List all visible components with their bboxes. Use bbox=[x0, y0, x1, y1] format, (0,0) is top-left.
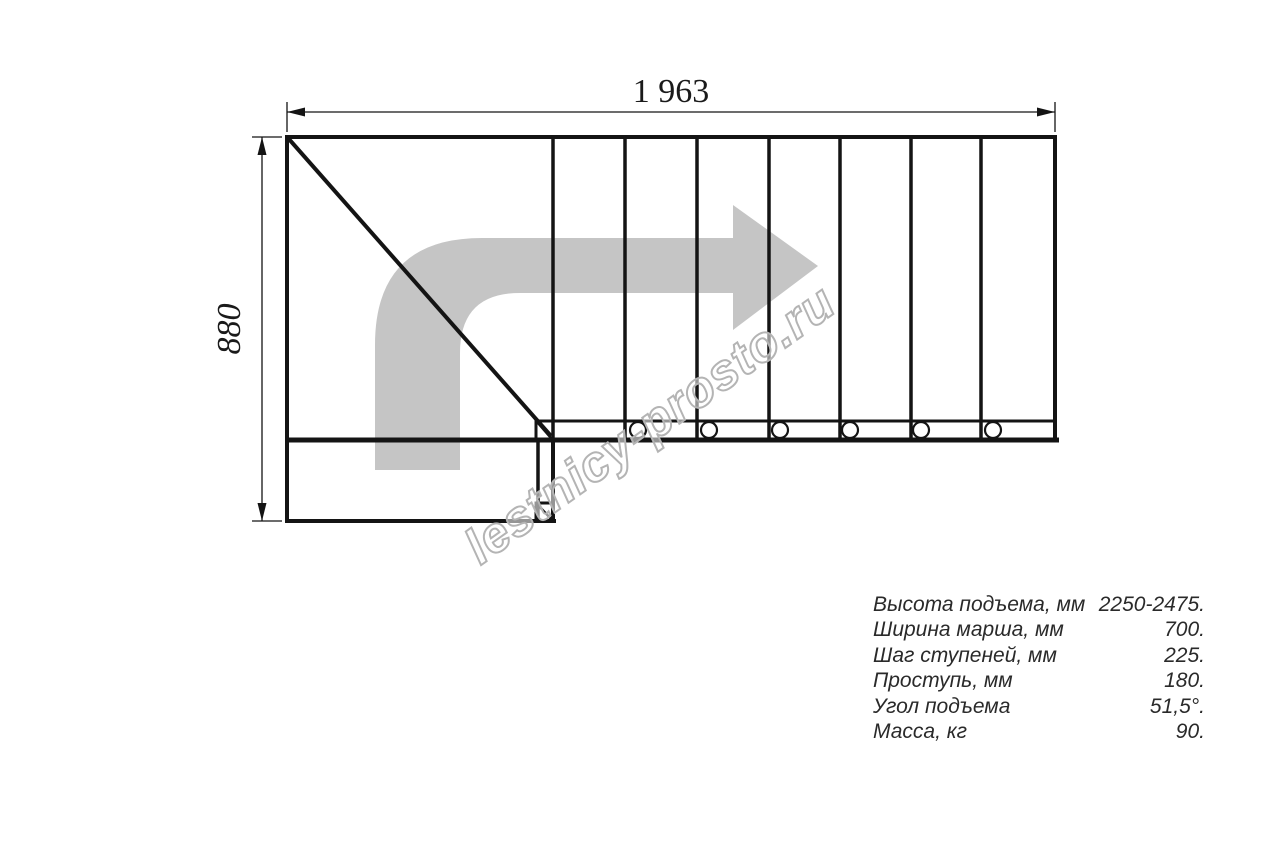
baluster-circle bbox=[985, 422, 1001, 438]
staircase-plan-page: 1 963 880 lestnicy-prosto.ru Высота подъ… bbox=[0, 0, 1280, 853]
dimension-height bbox=[252, 137, 282, 521]
spec-label: Угол подъема bbox=[873, 694, 1010, 719]
spec-row-tread: Проступь, мм 180. bbox=[873, 668, 1205, 693]
dimension-arrow-bottom bbox=[258, 503, 267, 521]
dimension-arrow-right bbox=[1037, 108, 1055, 117]
dimension-arrow-top bbox=[258, 137, 267, 155]
newel-post-top-hatch bbox=[538, 423, 551, 438]
dimension-width-value: 1 963 bbox=[633, 73, 710, 110]
spec-value: 51,5°. bbox=[1150, 694, 1205, 719]
spec-value: 225. bbox=[1164, 643, 1205, 668]
baluster-circle bbox=[772, 422, 788, 438]
spec-label: Масса, кг bbox=[873, 719, 967, 744]
dimension-arrow-left bbox=[287, 108, 305, 117]
spec-row-rise-height: Высота подъема, мм 2250-2475. bbox=[873, 592, 1205, 617]
spec-row-flight-width: Ширина марша, мм 700. bbox=[873, 617, 1205, 642]
spec-value: 2250-2475. bbox=[1099, 592, 1205, 617]
spec-value: 180. bbox=[1164, 668, 1205, 693]
dimension-height-value: 880 bbox=[211, 304, 248, 355]
spec-value: 90. bbox=[1176, 719, 1205, 744]
baluster-circle bbox=[701, 422, 717, 438]
spec-row-step-pitch: Шаг ступеней, мм 225. bbox=[873, 643, 1205, 668]
specifications-table: Высота подъема, мм 2250-2475. Ширина мар… bbox=[873, 592, 1205, 744]
baluster-circle bbox=[842, 422, 858, 438]
spec-label: Проступь, мм bbox=[873, 668, 1013, 693]
spec-row-climb-angle: Угол подъема 51,5°. bbox=[873, 694, 1205, 719]
spec-label: Ширина марша, мм bbox=[873, 617, 1064, 642]
spec-label: Высота подъема, мм bbox=[873, 592, 1085, 617]
spec-row-mass: Масса, кг 90. bbox=[873, 719, 1205, 744]
spec-value: 700. bbox=[1164, 617, 1205, 642]
baluster-circle bbox=[913, 422, 929, 438]
spec-label: Шаг ступеней, мм bbox=[873, 643, 1057, 668]
